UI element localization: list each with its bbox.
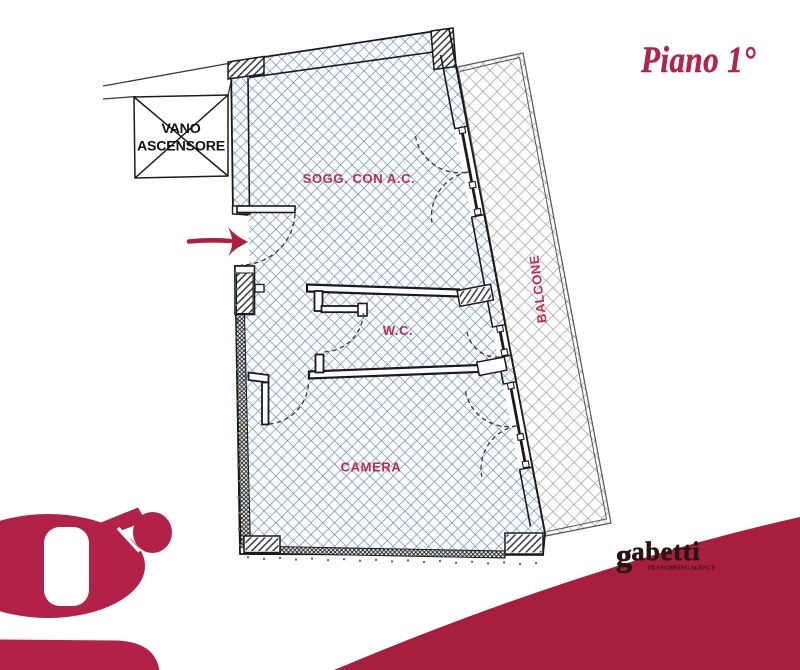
svg-text:abetti: abetti <box>632 537 701 566</box>
svg-text:ASCENSORE: ASCENSORE <box>137 139 225 155</box>
svg-text:VANO: VANO <box>161 121 200 137</box>
svg-text:Piano 1°: Piano 1° <box>640 41 756 81</box>
svg-text:g: g <box>616 537 632 573</box>
svg-text:W.C.: W.C. <box>383 323 414 338</box>
svg-text:CAMERA: CAMERA <box>341 460 402 475</box>
svg-text:SOGG. CON A.C.: SOGG. CON A.C. <box>303 171 416 186</box>
svg-text:FRANCHISING AGENCY: FRANCHISING AGENCY <box>648 566 716 572</box>
